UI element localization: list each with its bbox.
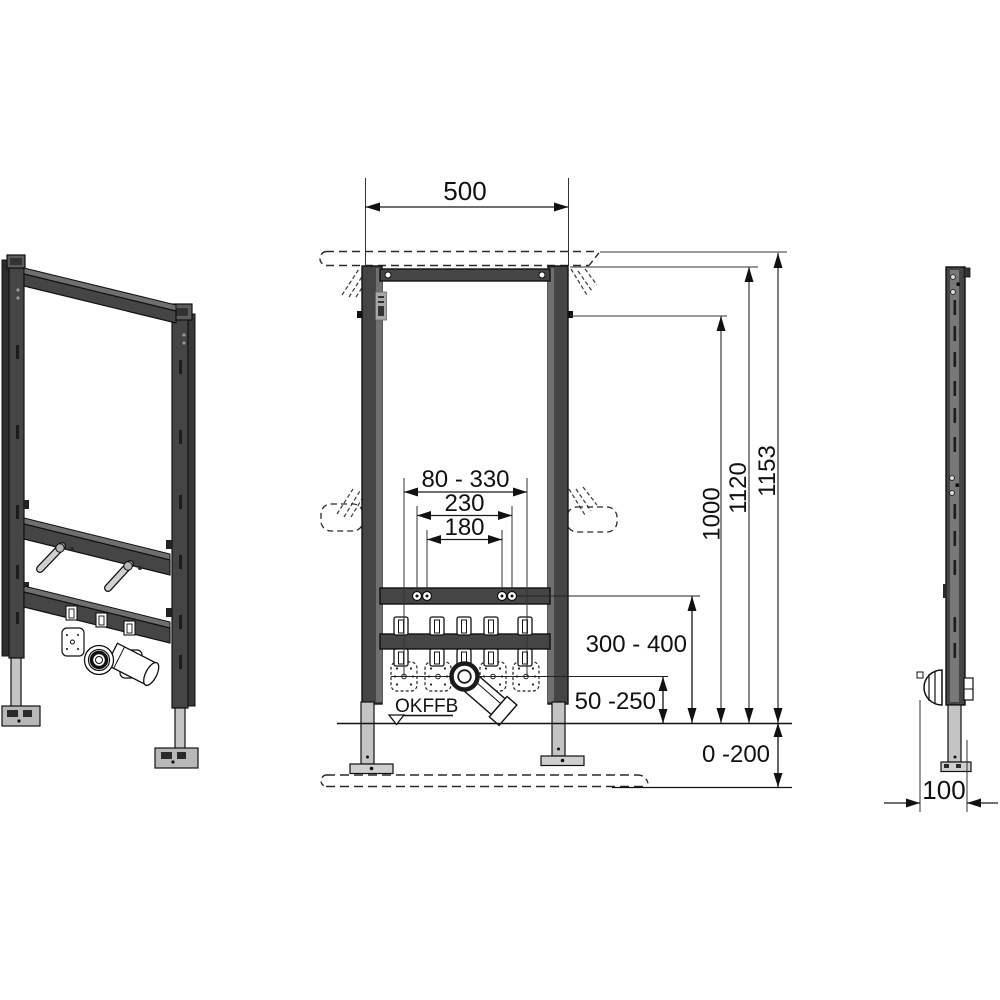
side-rail	[943, 267, 970, 705]
perspective-view	[2, 255, 198, 768]
frame-right-rail	[548, 266, 573, 704]
wall-rail-dashed	[320, 252, 600, 266]
dim-180-text: 180	[444, 514, 484, 541]
threaded-stud	[40, 544, 64, 569]
adjustable-foot-3d	[155, 708, 198, 768]
dim-100: 100	[884, 700, 998, 812]
drain-outlet-3d	[85, 643, 162, 688]
technical-drawing-canvas: OKFFB 500 80 - 330 230	[0, 0, 1000, 1000]
brand-label-sticker	[376, 292, 387, 320]
drawing-svg: OKFFB 500 80 - 330 230	[0, 0, 1000, 1000]
adjustable-foot-3d	[2, 658, 40, 726]
dim-1000: 1000	[570, 316, 727, 723]
dim-0-200: 0 -200	[702, 723, 783, 787]
top-crossbar-3d	[24, 268, 176, 323]
mounting-plate-3d	[62, 628, 84, 656]
dim-500-text: 500	[443, 176, 486, 206]
dim-80-330-text: 80 - 330	[421, 466, 509, 493]
raw-floor-dashed	[321, 775, 648, 787]
dim-230-text: 230	[444, 490, 484, 517]
dim-50-250: 50 -250	[575, 677, 668, 723]
frame-right-rail-3d	[166, 304, 195, 708]
dim-1153-text: 1153	[754, 445, 781, 497]
top-crossbar	[380, 269, 550, 281]
okffb-text: OKFFB	[395, 696, 458, 717]
threaded-stud	[108, 562, 132, 588]
dim-1000-text: 1000	[699, 487, 726, 540]
okffb-label: OKFFB	[389, 696, 458, 725]
dim-100-text: 100	[922, 775, 965, 805]
lower-crossbar	[380, 634, 550, 649]
side-view: 100	[884, 267, 998, 812]
dim-0-200-text: 0 -200	[702, 741, 770, 768]
dim-1120-text: 1120	[725, 462, 752, 514]
front-view: OKFFB 500 80 - 330 230	[320, 176, 792, 788]
dim-180: 180	[427, 514, 502, 591]
dim-500: 500	[366, 176, 569, 268]
dim-300-400-text: 300 - 400	[586, 631, 687, 658]
adjustable-foot-left	[350, 702, 393, 774]
dim-50-250-text: 50 -250	[575, 688, 656, 715]
